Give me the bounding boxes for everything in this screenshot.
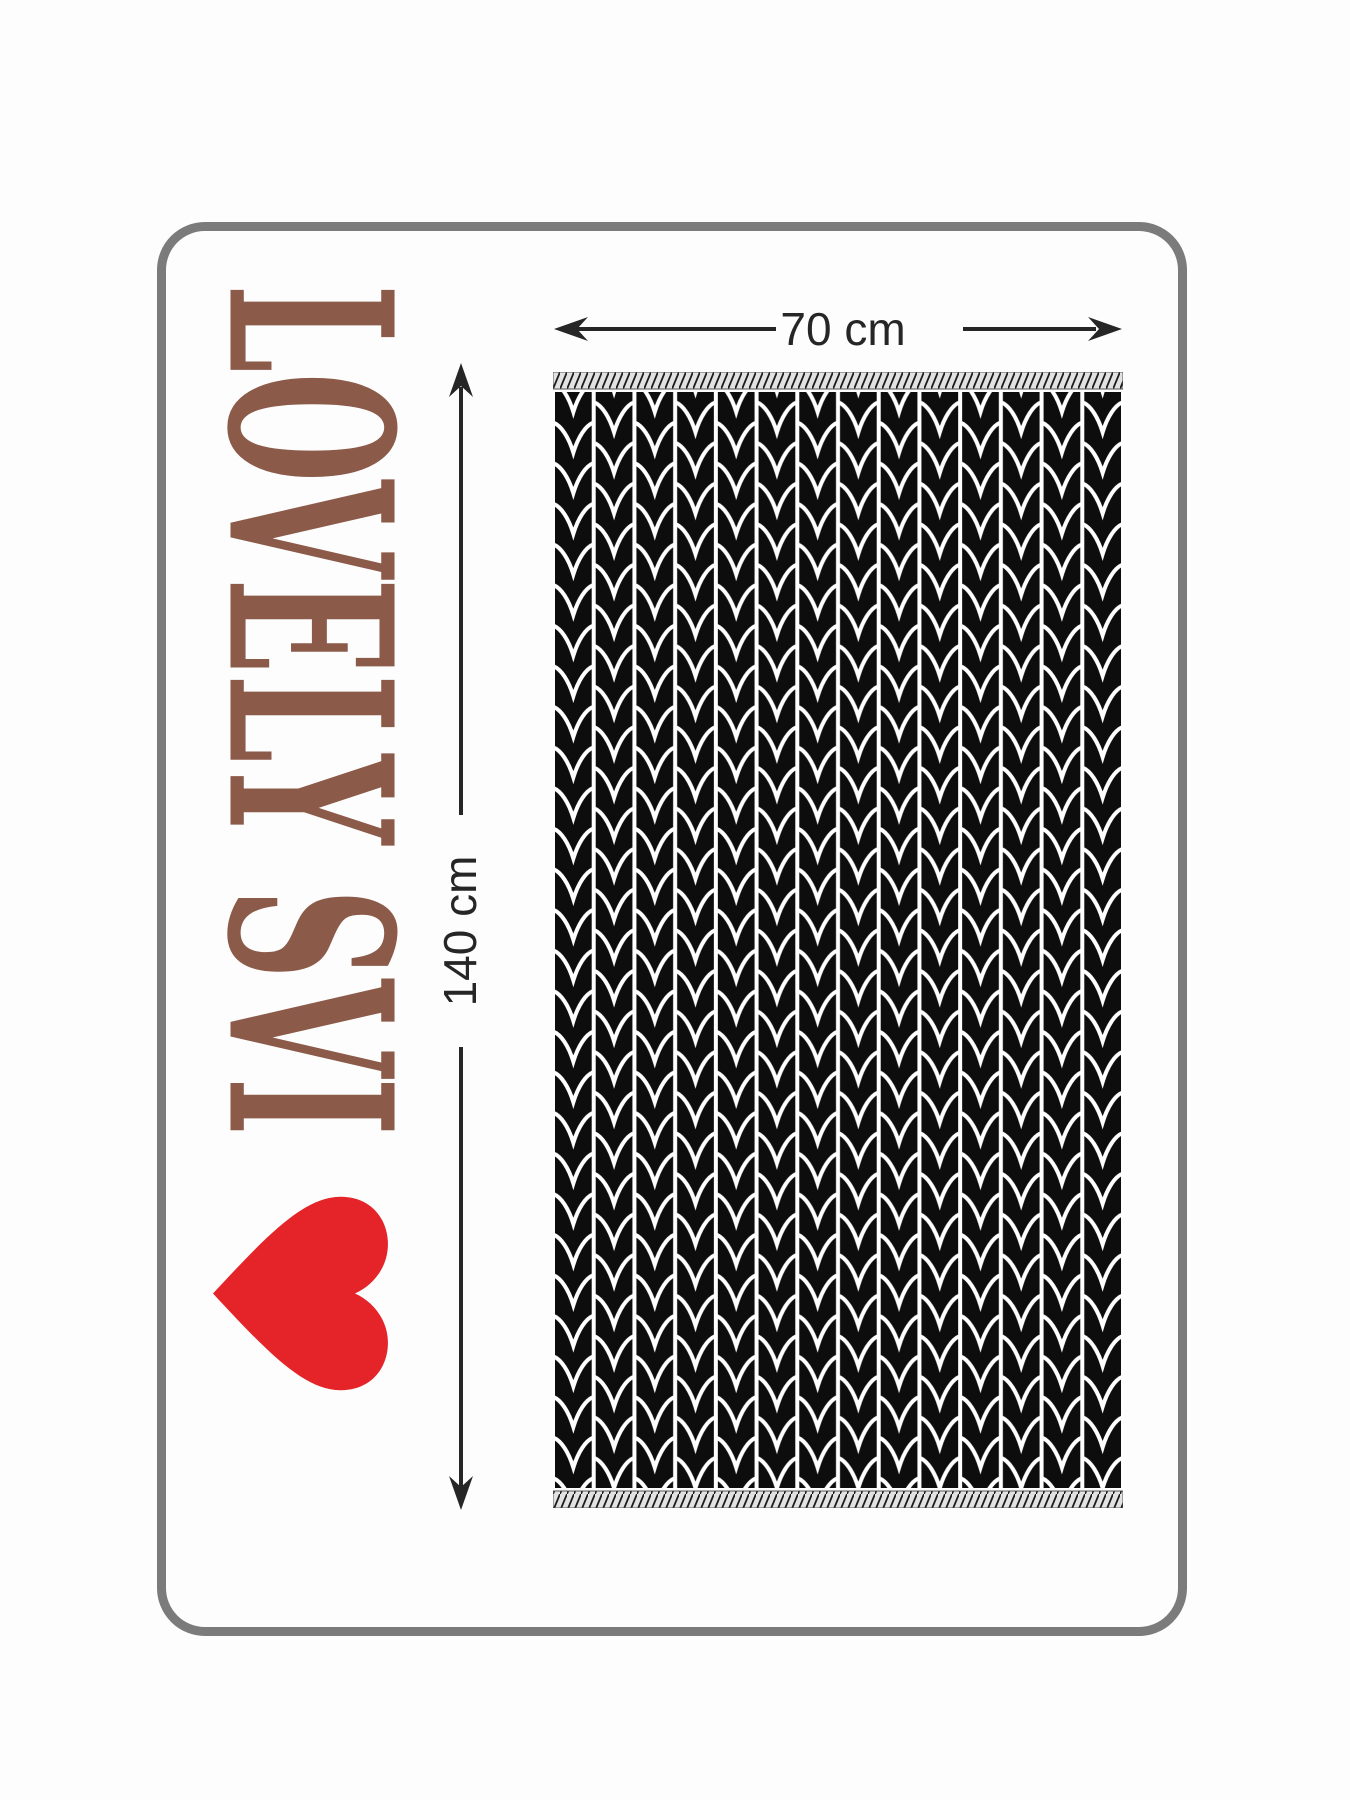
- height-dimension-label: 140 cm: [437, 856, 483, 1007]
- heart-shape: [213, 1197, 388, 1390]
- brand-text: LOVELY SVI: [196, 284, 421, 1136]
- width-dimension-label: 70 cm: [780, 306, 905, 352]
- heart-icon: [213, 1190, 390, 1397]
- towel-top-border-strip: [553, 372, 1123, 389]
- towel-image: [553, 372, 1123, 1508]
- towel-bottom-border-strip: [553, 1491, 1123, 1508]
- towel-pattern-field: [553, 392, 1123, 1488]
- product-image: LOVELY SVI 70 cm 140 cm: [0, 0, 1350, 1800]
